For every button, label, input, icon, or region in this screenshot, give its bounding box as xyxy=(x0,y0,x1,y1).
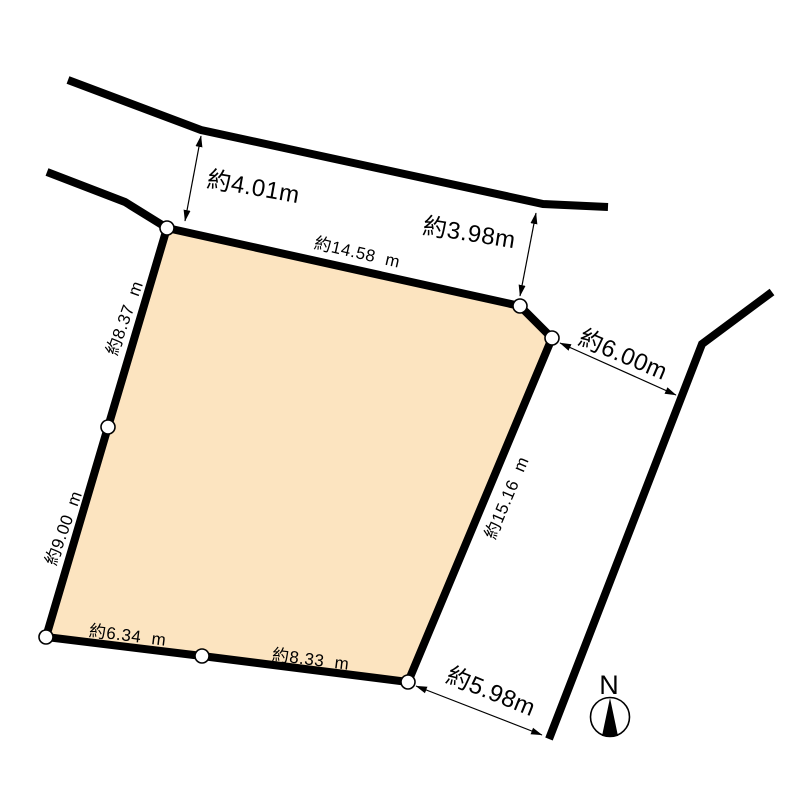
vertex-marker-right-upper xyxy=(545,331,559,345)
vertex-marker-top-right xyxy=(513,299,527,313)
dim-label-top-road-width-right: 約3.98m xyxy=(421,213,518,254)
dim-label-right-road-offset-lower: 約5.98m xyxy=(442,662,539,722)
vertex-marker-bottom-left xyxy=(39,630,53,644)
north-compass-icon: N xyxy=(591,670,630,737)
top-road-near-edge xyxy=(47,172,167,228)
vertex-marker-bottom-mid xyxy=(195,649,209,663)
vertex-marker-left-mid xyxy=(101,420,115,434)
dim-label-top-road-width-left: 約4.01m xyxy=(205,166,302,209)
plot-drawing-canvas: 約4.01m 約3.98m 約6.00m 約5.98m 約14.58 m 約8.… xyxy=(0,0,800,800)
vertex-marker-top-left xyxy=(160,221,174,235)
land-plot-diagram: 約4.01m 約3.98m 約6.00m 約5.98m 約14.58 m 約8.… xyxy=(0,0,800,800)
vertex-marker-bottom-right xyxy=(401,675,415,689)
dim-label-right-road-offset-upper: 約6.00m xyxy=(575,324,672,385)
arrow-top-road-width-right xyxy=(520,213,536,296)
north-label: N xyxy=(599,670,619,700)
arrow-top-road-width-left xyxy=(185,136,201,221)
top-road-far-edge xyxy=(68,80,608,207)
